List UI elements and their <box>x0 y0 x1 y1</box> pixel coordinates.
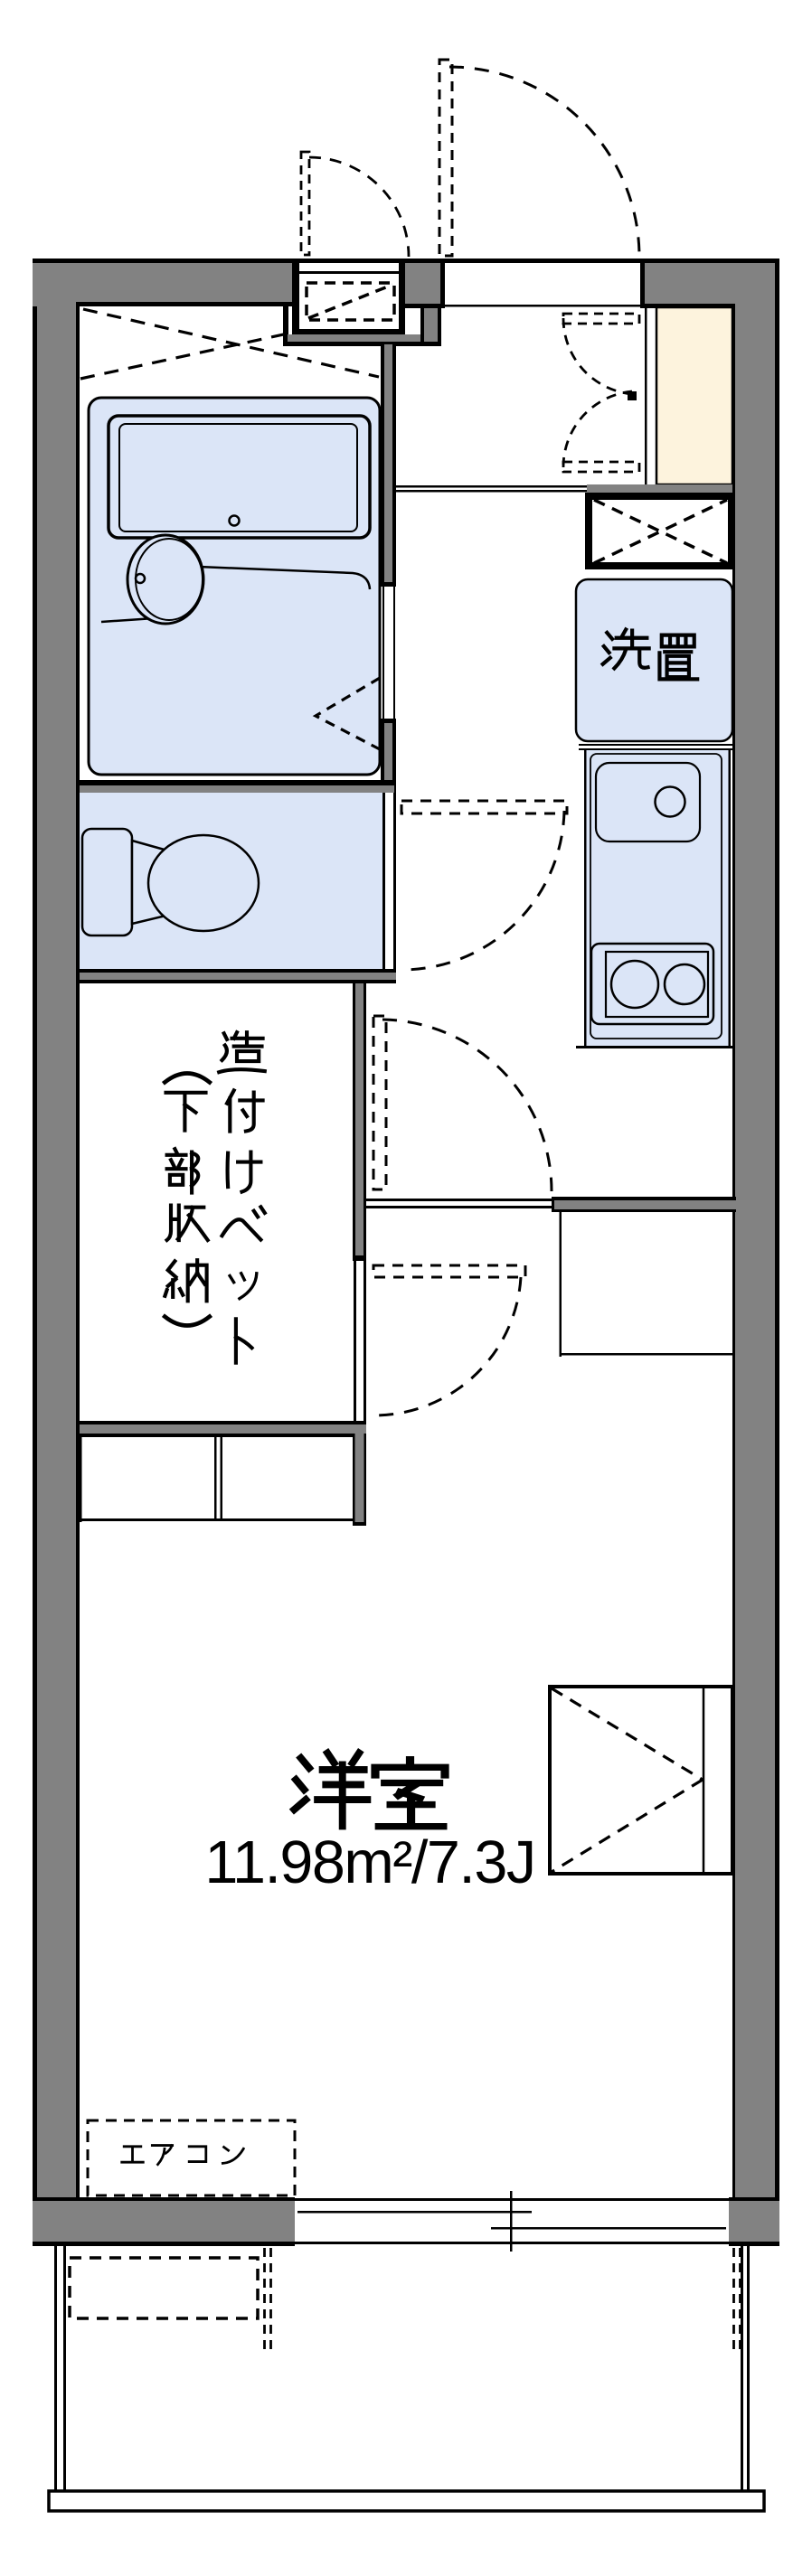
svg-text:11.98m²/7.3J: 11.98m²/7.3J <box>204 1829 534 1896</box>
